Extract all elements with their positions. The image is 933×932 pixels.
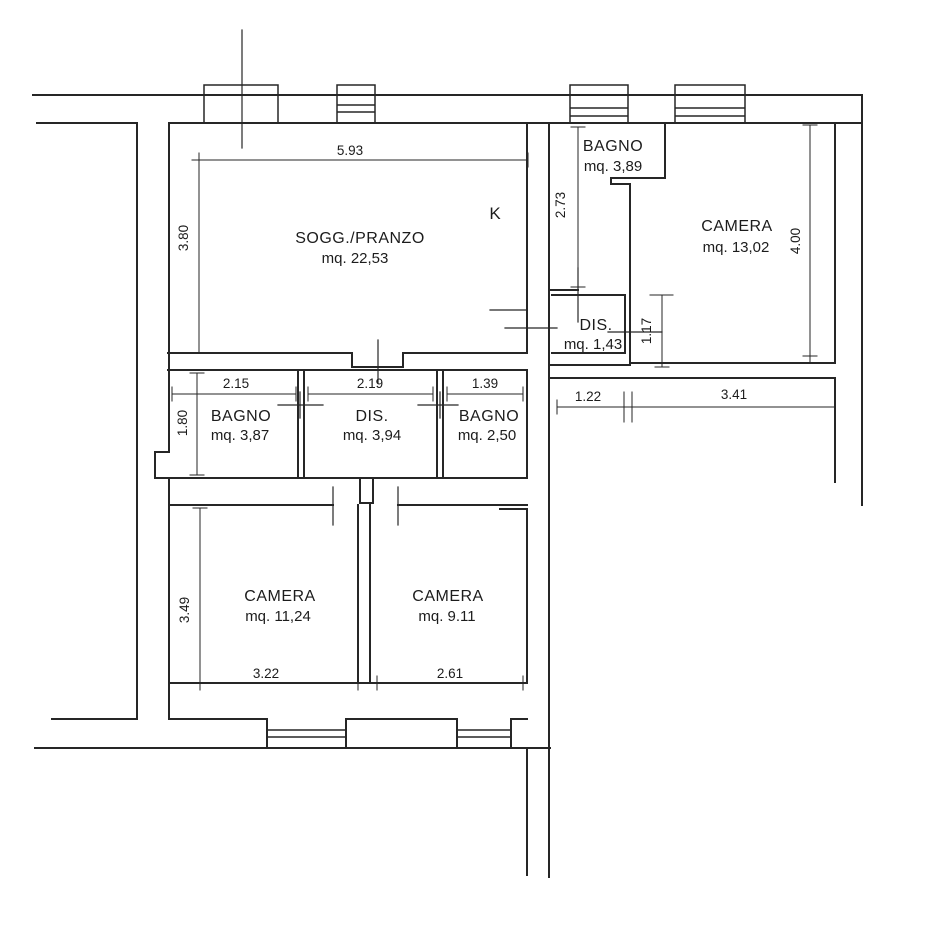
room-label-bagno-center: BAGNO: [459, 408, 519, 425]
room-area-camera-bc: mq. 9.11: [418, 608, 475, 625]
top-window-1: [204, 85, 278, 123]
room-label-camera-bc: CAMERA: [412, 588, 483, 605]
dim-camera-bc-width: 2.61: [437, 666, 463, 681]
room-label-bagno-left: BAGNO: [211, 408, 271, 425]
dim-bagno-left-height: 1.80: [175, 410, 190, 436]
room-area-bagno-top: mq. 3,89: [584, 158, 642, 175]
bottom-window-1: [267, 730, 346, 737]
top-window-2: [337, 85, 375, 123]
top-window-4: [675, 85, 745, 123]
dim-dis-center-width: 2.19: [357, 376, 383, 391]
bottom-window-2: [457, 730, 511, 737]
dim-sogg-width: 5.93: [337, 143, 363, 158]
dim-camera-right-height: 4.00: [788, 228, 803, 254]
dim-bagno-left-width: 2.15: [223, 376, 249, 391]
room-label-soggiorno: SOGG./PRANZO: [295, 230, 425, 247]
room-area-dis-center: mq. 3,94: [343, 427, 401, 444]
floorplan-canvas: SOGG./PRANZO mq. 22,53 K BAGNO mq. 3,89 …: [0, 0, 933, 932]
dim-camera-bl-height: 3.49: [177, 597, 192, 623]
room-area-bagno-left: mq. 3,87: [211, 427, 269, 444]
room-area-dis-small: mq. 1,43: [564, 336, 622, 353]
door-bagno-left-dis: [278, 392, 323, 418]
bottom-camera-walls: [169, 505, 527, 748]
room-area-soggiorno: mq. 22,53: [322, 250, 389, 267]
dim-line-camera-right: [803, 125, 817, 363]
labels: SOGG./PRANZO mq. 22,53 K BAGNO mq. 3,89 …: [175, 138, 803, 681]
room-label-camera-right: CAMERA: [701, 218, 772, 235]
soggiorno-walls: [168, 353, 527, 367]
dim-camera-bl-width: 3.22: [253, 666, 279, 681]
room-area-camera-right: mq. 13,02: [703, 239, 770, 256]
door-corridor-dis-small: [490, 310, 557, 328]
walls: [33, 95, 862, 877]
kitchen-label: K: [489, 204, 501, 223]
outer-walls: [33, 95, 862, 877]
room-label-dis-center: DIS.: [355, 408, 388, 425]
floorplan-drawing: SOGG./PRANZO mq. 22,53 K BAGNO mq. 3,89 …: [0, 0, 933, 932]
room-label-bagno-top: BAGNO: [583, 138, 643, 155]
room-area-bagno-center: mq. 2,50: [458, 427, 516, 444]
room-area-camera-bl: mq. 11,24: [245, 608, 311, 625]
right-section-walls: [549, 123, 835, 482]
dim-bagno-top-height: 2.73: [553, 192, 568, 218]
dim-dis-small-height: 1.17: [639, 318, 654, 344]
dim-bagno-center-width: 1.39: [472, 376, 498, 391]
top-window-3: [570, 85, 628, 123]
dim-hall-left: 1.22: [575, 389, 601, 404]
dim-hall-right: 3.41: [721, 387, 747, 402]
dim-sogg-height: 3.80: [176, 225, 191, 251]
room-label-camera-bl: CAMERA: [244, 588, 315, 605]
room-label-dis-small: DIS.: [579, 317, 612, 334]
